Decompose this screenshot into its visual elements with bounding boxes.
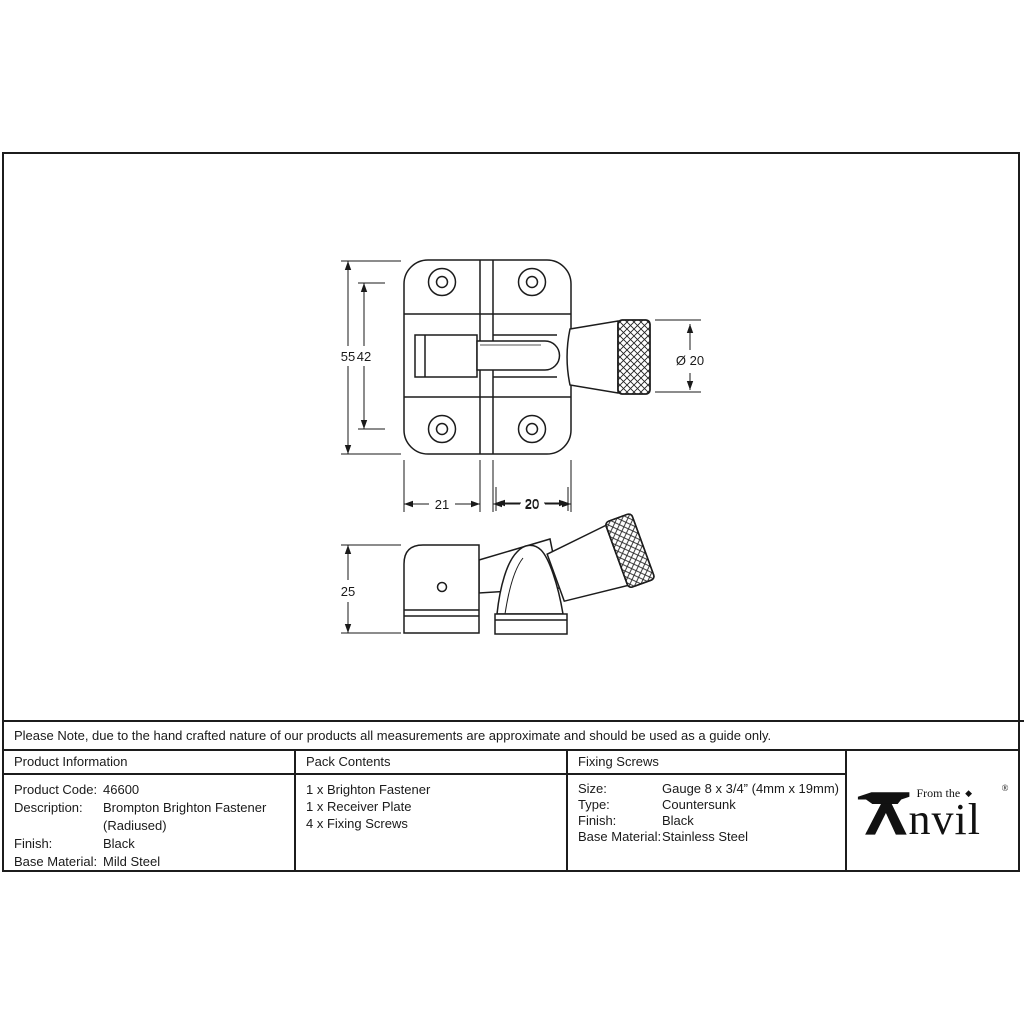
row-value: Countersunk [662,797,845,813]
product-information-header: Product Information [4,751,294,775]
receiver-base [495,614,567,634]
row-label: Size: [578,781,662,797]
row-value: Black [103,835,294,853]
row-value: Stainless Steel [662,829,845,845]
row-label: Product Code: [14,781,103,799]
table-row: Size: Gauge 8 x 3/4” (4mm x 19mm) [578,781,845,797]
anvil-icon [857,788,913,838]
row-label: Finish: [14,835,103,853]
registered-trademark-icon: ® [1002,783,1009,793]
note-text: Please Note, due to the hand crafted nat… [14,728,771,743]
dim-label-knob-diameter: Ø 20 [676,353,704,368]
side-base-plate [404,545,479,633]
dim-label-25: 25 [341,584,355,599]
knob-neck [567,321,618,393]
fixing-screws-column: Fixing Screws Size: Gauge 8 x 3/4” (4mm … [566,751,845,872]
pack-item: 1 x Brighton Fastener [306,781,566,798]
table-row: Type: Countersunk [578,797,845,813]
table-row: Base Material: Mild Steel [14,853,294,871]
row-label: Base Material: [14,853,103,871]
row-value: 46600 [103,781,294,799]
spec-sheet-canvas: 55 42 Ø 20 21 20 [0,0,1024,1024]
fixing-screws-header: Fixing Screws [568,751,845,775]
row-value: Gauge 8 x 3/4” (4mm x 19mm) [662,781,845,797]
logo-tagline: From the◆ [917,786,973,801]
front-view [404,260,650,454]
document-page: 55 42 Ø 20 21 20 [2,152,1020,872]
row-label: Type: [578,797,662,813]
logo-wordmark: nvil [909,798,981,842]
pack-contents-body: 1 x Brighton Fastener 1 x Receiver Plate… [296,775,566,832]
knurled-knob [618,320,650,394]
technical-drawing: 55 42 Ø 20 21 20 [4,154,1018,720]
row-label: Description: [14,799,103,835]
pack-contents-header: Pack Contents [296,751,566,775]
from-the-anvil-logo: nvil From the◆ ® [857,783,1009,841]
diamond-icon: ◆ [965,788,972,798]
brand-logo-cell: nvil From the◆ ® [845,751,1018,872]
table-row: Finish: Black [578,813,845,829]
table-row: Finish: Black [14,835,294,853]
row-value: Brompton Brighton Fastener (Radiused) [103,799,294,835]
dim-label-21: 21 [435,497,449,512]
measurement-note: Please Note, due to the hand crafted nat… [4,720,1024,749]
dim-label-42: 42 [357,349,371,364]
row-label: Finish: [578,813,662,829]
product-information-body: Product Code: 46600 Description: Brompto… [4,775,294,871]
dim-label-20-side: 20 [525,496,539,511]
pack-contents-column: Pack Contents 1 x Brighton Fastener 1 x … [294,751,566,872]
table-row: Product Code: 46600 [14,781,294,799]
row-label: Base Material: [578,829,662,845]
dim-label-55: 55 [341,349,355,364]
table-row: Description: Brompton Brighton Fastener … [14,799,294,835]
row-value: Mild Steel [103,853,294,871]
row-value: Black [662,813,845,829]
fixing-screws-body: Size: Gauge 8 x 3/4” (4mm x 19mm) Type: … [568,775,845,845]
spec-table: Product Information Product Code: 46600 … [4,749,1018,872]
side-view [404,513,655,634]
pack-item: 1 x Receiver Plate [306,798,566,815]
table-row: Base Material: Stainless Steel [578,829,845,845]
product-information-column: Product Information Product Code: 46600 … [4,751,294,872]
pack-item: 4 x Fixing Screws [306,815,566,832]
